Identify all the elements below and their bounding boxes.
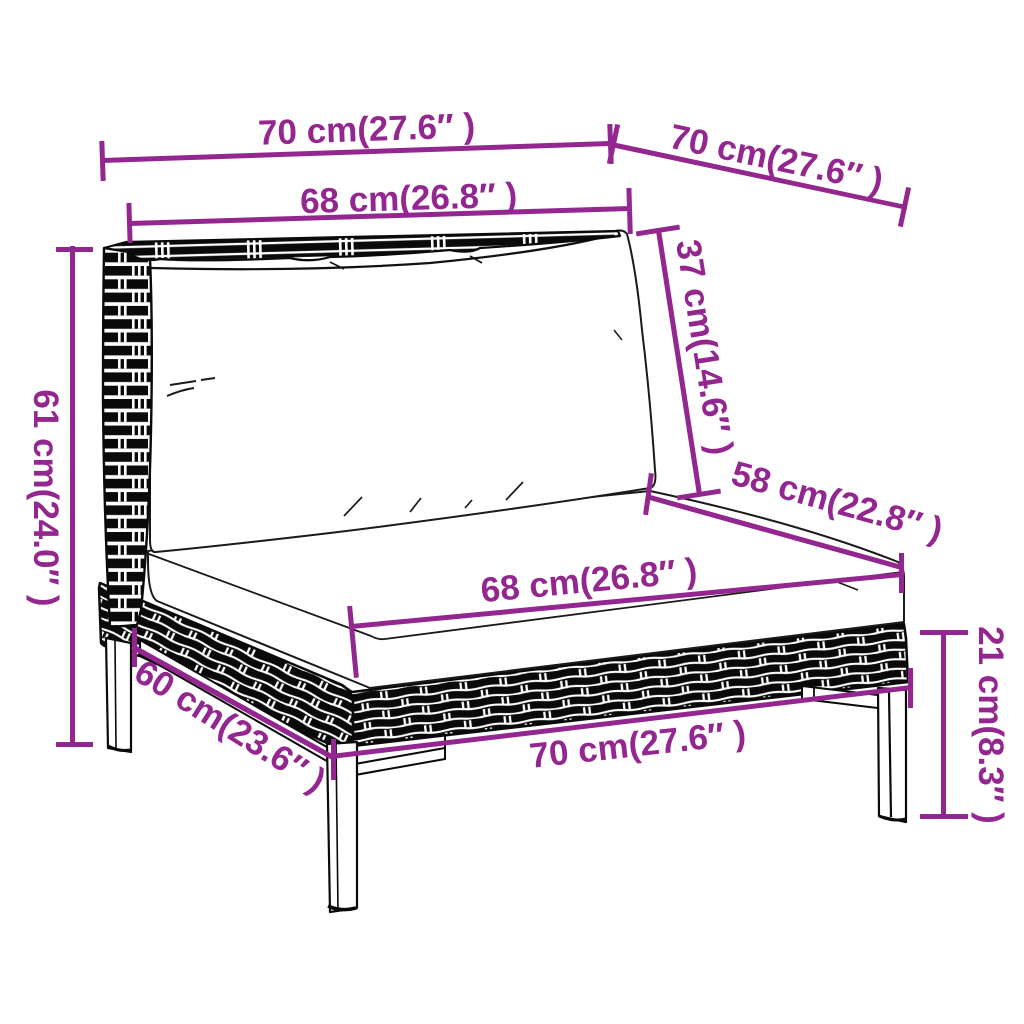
svg-text:21 cm(8.3″ ): 21 cm(8.3″ ) [971,626,1010,824]
svg-text:70 cm(27.6″ ): 70 cm(27.6″ ) [257,106,475,153]
svg-text:61 cm(24.0″ ): 61 cm(24.0″ ) [26,389,65,606]
svg-text:68 cm(26.8″ ): 68 cm(26.8″ ) [300,176,518,221]
